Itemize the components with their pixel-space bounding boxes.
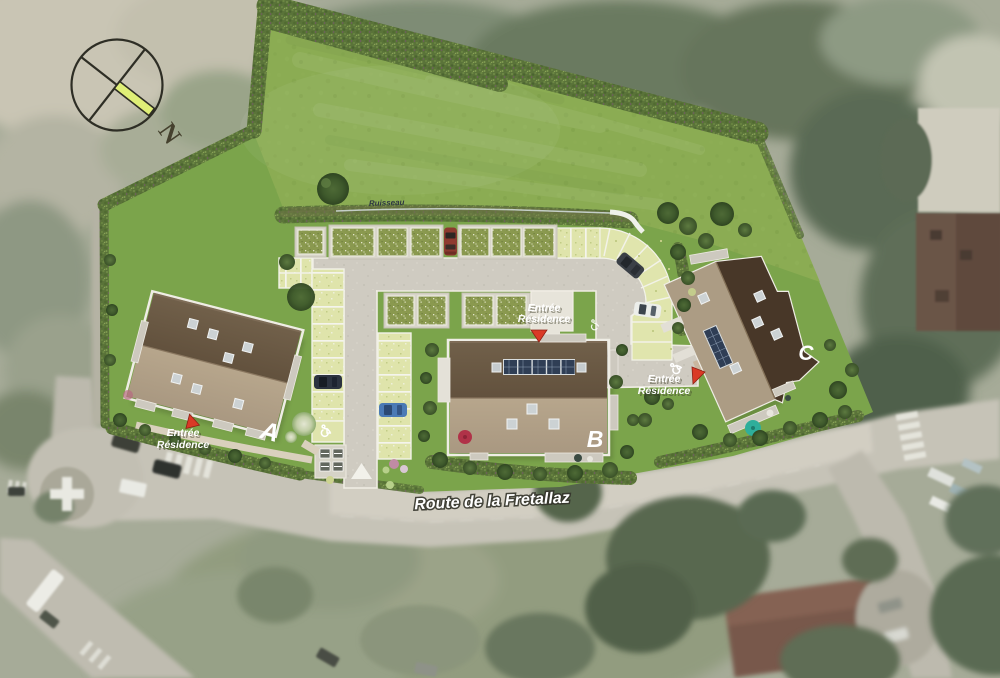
svg-text:Entrée: Entrée	[648, 373, 681, 385]
svg-text:Résidence: Résidence	[518, 313, 571, 325]
svg-text:Entrée: Entrée	[167, 427, 200, 439]
svg-text:Ruisseau: Ruisseau	[369, 198, 405, 208]
svg-text:Résidence: Résidence	[157, 439, 210, 451]
svg-text:B: B	[587, 426, 604, 452]
svg-text:Résidence: Résidence	[638, 385, 691, 397]
svg-text:C: C	[798, 342, 814, 365]
